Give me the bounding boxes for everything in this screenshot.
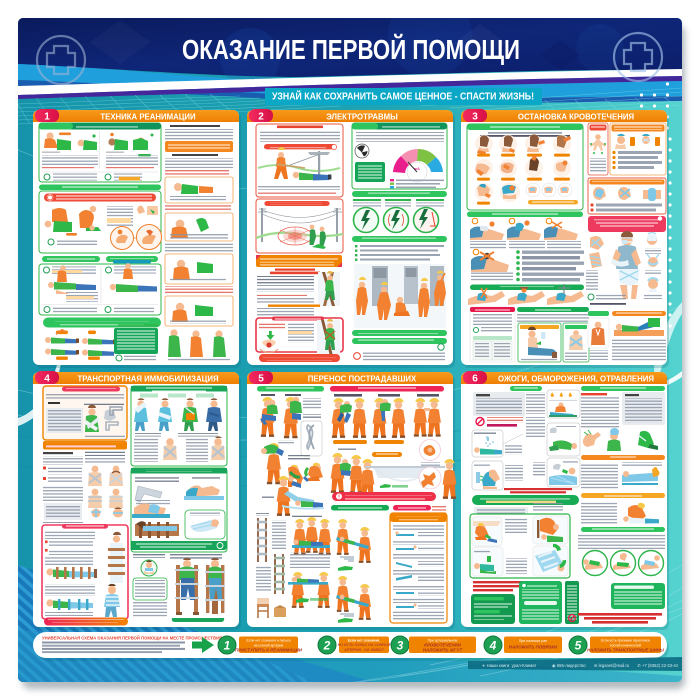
svg-text:ОКАЗАНИЕ ПЕРВОЙ ПОМОЩИ: ОКАЗАНИЕ ПЕРВОЙ ПОМОЩИ (182, 33, 520, 65)
svg-text:НАЛОЖИТЬ ЖГУТ: НАЛОЖИТЬ ЖГУТ (423, 648, 463, 653)
svg-text:4: 4 (44, 374, 50, 385)
svg-text:✆ +7 (8352) 22-33-44: ✆ +7 (8352) 22-33-44 (637, 663, 678, 668)
svg-text:1: 1 (44, 112, 50, 123)
svg-text:НАЛОЖИТЬ ПОВЯЗКИ: НАЛОЖИТЬ ПОВЯЗКИ (509, 645, 558, 650)
svg-text:✉ leganet@mail.ru: ✉ leganet@mail.ru (594, 663, 630, 668)
svg-text:ТЕХНИКА РЕАНИМАЦИИ: ТЕХНИКА РЕАНИМАЦИИ (100, 113, 196, 122)
svg-text:Если нет сознания и пульса: Если нет сознания и пульса (247, 639, 291, 643)
svg-text:5: 5 (575, 639, 582, 653)
svg-text:НАЛОЖИТЬ ТРАНСПОРТНЫЕ ШИНЫ: НАЛОЖИТЬ ТРАНСПОРТНЫЕ ШИНЫ (587, 648, 665, 653)
svg-text:5: 5 (258, 374, 264, 385)
svg-text:◉ 555-лидерство: ◉ 555-лидерство (552, 663, 586, 668)
svg-text:УЗНАЙ КАК СОХРАНИТЬ САМОЕ ЦЕНН: УЗНАЙ КАК СОХРАНИТЬ САМОЕ ЦЕННОЕ - СПАСТ… (272, 91, 534, 103)
svg-text:ПЕРЕНОС ПОСТРАДАВШИХ: ПЕРЕНОС ПОСТРАДАВШИХ (308, 375, 417, 384)
svg-text:4: 4 (489, 639, 497, 653)
svg-text:ЭЛЕКТРОТРАВМЫ: ЭЛЕКТРОТРАВМЫ (326, 113, 398, 122)
svg-text:ОЖОГИ, ОБМОРОЖЕНИЯ, ОТРАВЛЕНИЯ: ОЖОГИ, ОБМОРОЖЕНИЯ, ОТРАВЛЕНИЯ (498, 375, 654, 384)
svg-text:Если нет сознания,: Если нет сознания, (348, 639, 380, 643)
svg-text:При наличии ран: При наличии ран (519, 639, 548, 643)
svg-text:АРТЕРИИ - НА ЖИВОТ: АРТЕРИИ - НА ЖИВОТ (343, 648, 385, 652)
svg-text:2: 2 (323, 639, 331, 653)
svg-text:6: 6 (472, 374, 478, 385)
svg-text:!: ! (338, 495, 340, 501)
svg-text:3: 3 (397, 639, 404, 653)
svg-text:1: 1 (224, 639, 231, 653)
svg-text:Если есть признаки переломов: Если есть признаки переломов (601, 639, 650, 643)
svg-text:ОСТАНОВКА КРОВОТЕЧЕНИЯ: ОСТАНОВКА КРОВОТЕЧЕНИЯ (518, 113, 635, 122)
svg-text:ТРАНСПОРТНАЯ ИММОБИЛИЗАЦИЯ: ТРАНСПОРТНАЯ ИММОБИЛИЗАЦИЯ (77, 375, 218, 384)
svg-text:3: 3 (472, 112, 478, 123)
svg-text:✈ Наши книги: урал-Климат: ✈ Наши книги: урал-Климат (482, 663, 536, 668)
svg-text:НО ЕСТЬ ПУЛЬС НА СОННОЙ: НО ЕСТЬ ПУЛЬС НА СОННОЙ (338, 643, 391, 647)
svg-text:2: 2 (258, 112, 264, 123)
svg-text:ПРИСТУПИТЬ К РЕАНИМАЦИИ: ПРИСТУПИТЬ К РЕАНИМАЦИИ (235, 648, 303, 653)
svg-text:УНИВЕРСАЛЬНАЯ СХЕМА ОКАЗАНИЯ П: УНИВЕРСАЛЬНАЯ СХЕМА ОКАЗАНИЯ ПЕРВОЙ ПОМО… (42, 636, 222, 641)
